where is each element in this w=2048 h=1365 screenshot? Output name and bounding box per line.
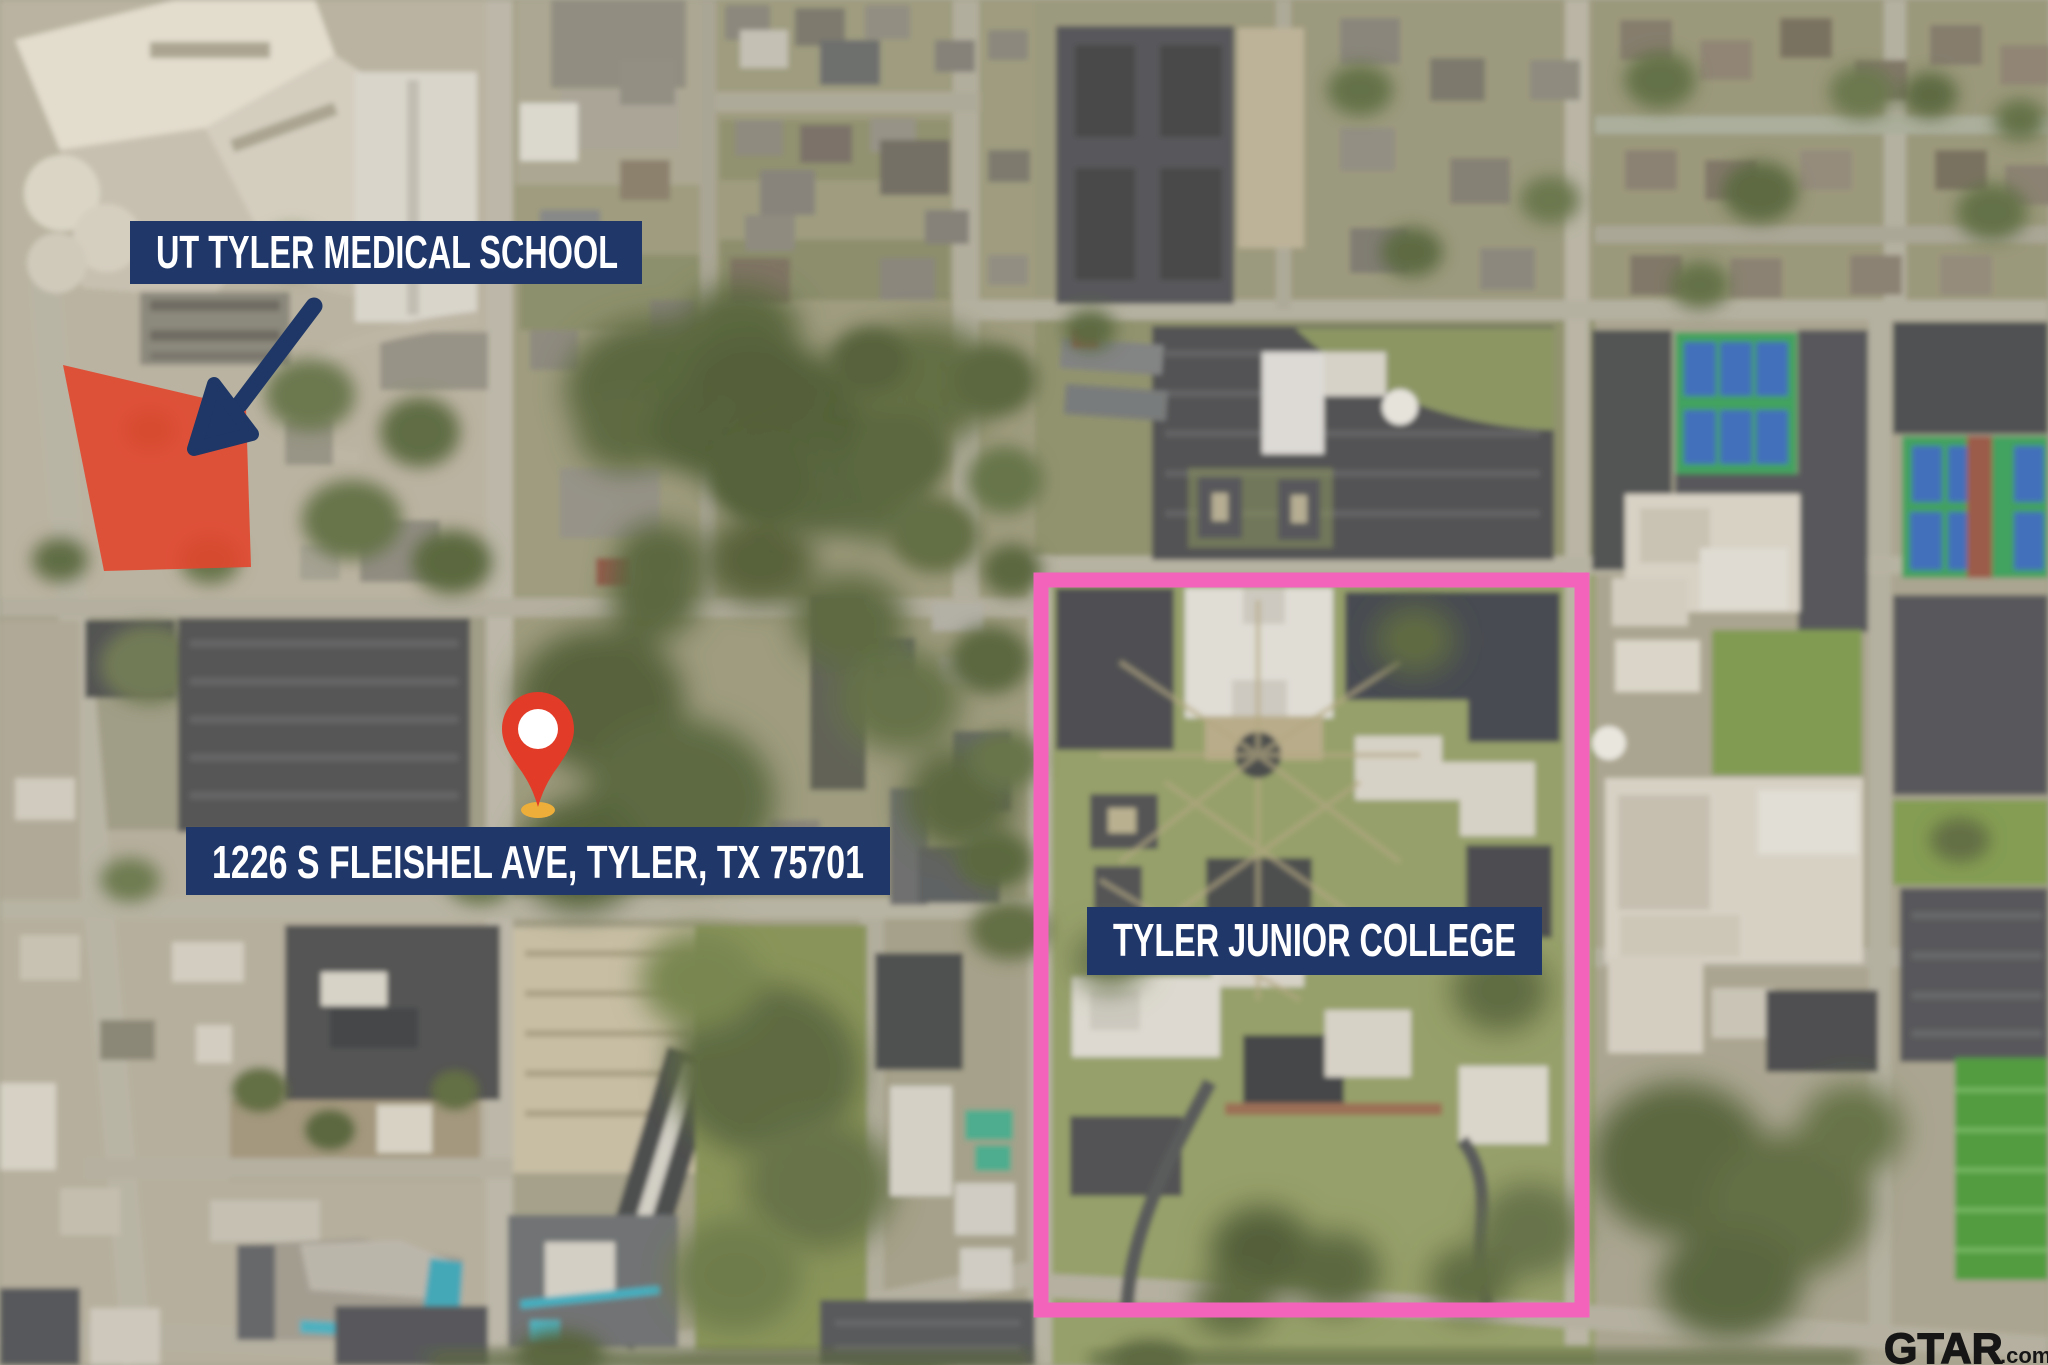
svg-text:.com: .com xyxy=(2000,1343,2048,1365)
svg-text:UT TYLER MEDICAL SCHOOL: UT TYLER MEDICAL SCHOOL xyxy=(156,226,618,278)
svg-text:GTAR: GTAR xyxy=(1884,1325,2003,1365)
svg-text:TYLER JUNIOR COLLEGE: TYLER JUNIOR COLLEGE xyxy=(1113,914,1516,966)
svg-text:1226 S FLEISHEL AVE, TYLER, TX: 1226 S FLEISHEL AVE, TYLER, TX 75701 xyxy=(212,836,864,888)
